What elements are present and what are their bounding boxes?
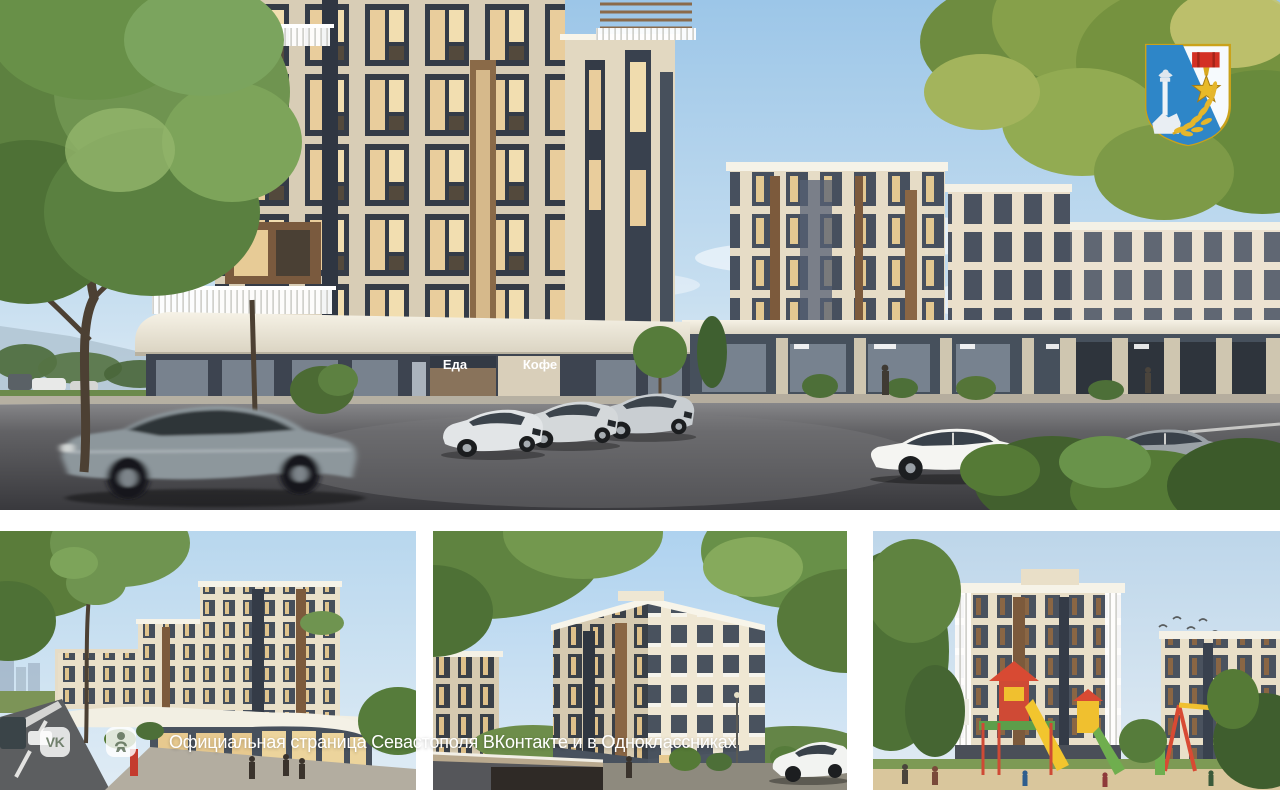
odnoklassniki-icon <box>106 727 136 757</box>
shop-sign-food: Еда <box>443 357 468 372</box>
main-render-photo: Еда Кофе <box>0 0 1280 510</box>
post-collage: Еда Кофе <box>0 0 1280 790</box>
shop-sign-coffee: Кофе <box>523 357 557 372</box>
vk-icon-label: VK <box>46 734 64 750</box>
foreground-bushes <box>960 436 1280 510</box>
caption-text: Официальная страница Севастополя ВКонтак… <box>169 732 736 753</box>
caption-overlay: VK Официальная страница Севастополя ВКон… <box>40 726 736 758</box>
sevastopol-coat-of-arms-icon <box>1142 42 1234 148</box>
vk-icon: VK <box>40 727 70 757</box>
thumb-playground <box>873 531 1280 790</box>
ok-person-glyph <box>113 731 129 753</box>
